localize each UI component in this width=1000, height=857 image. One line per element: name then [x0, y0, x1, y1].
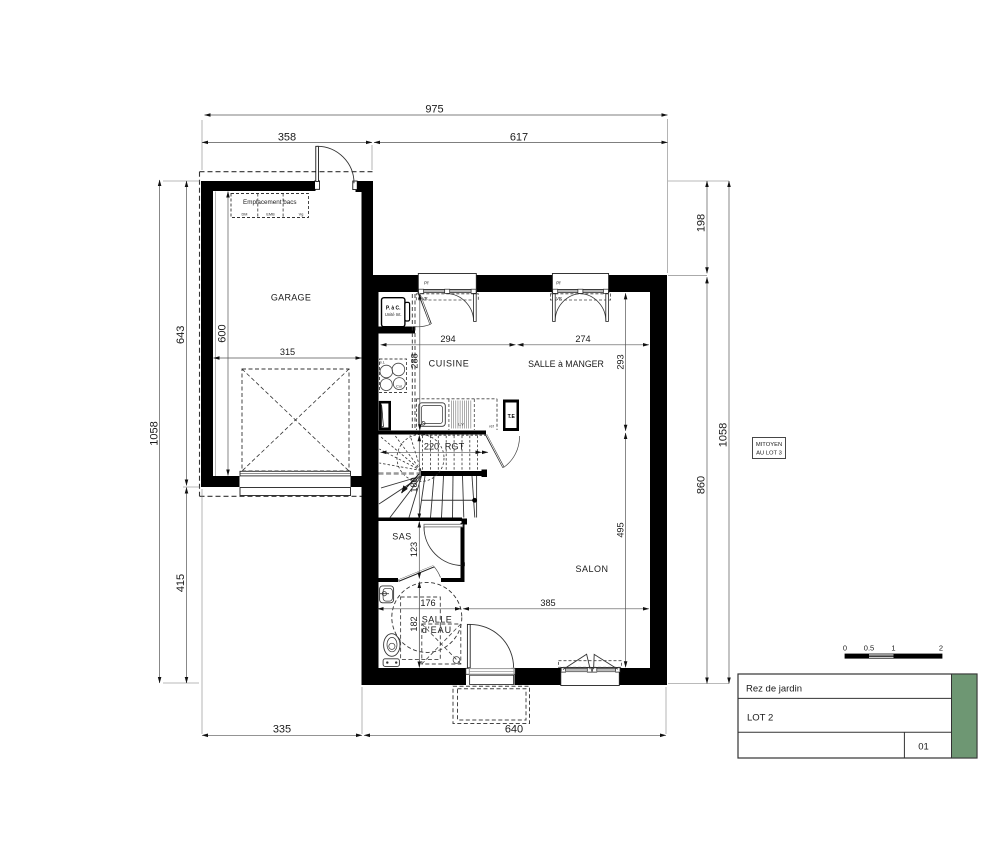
svg-text:293: 293 [615, 354, 625, 369]
svg-text:T.E: T.E [508, 414, 516, 420]
svg-text:2: 2 [939, 644, 943, 653]
svg-text:L.V: L.V [458, 423, 464, 427]
svg-text:P. à C.: P. à C. [386, 306, 401, 312]
svg-text:Pf: Pf [556, 281, 561, 286]
svg-text:643: 643 [175, 326, 187, 344]
svg-text:288: 288 [410, 353, 420, 368]
svg-text:176: 176 [420, 598, 435, 608]
svg-text:495: 495 [615, 522, 625, 537]
svg-text:294: 294 [440, 334, 455, 344]
svg-text:AU LOT 3: AU LOT 3 [756, 451, 782, 457]
svg-text:315: 315 [280, 347, 295, 357]
svg-text:S.L: S.L [379, 361, 385, 365]
svg-text:Emplacement bacs: Emplacement bacs [243, 199, 297, 206]
svg-text:198: 198 [696, 214, 708, 232]
svg-text:0: 0 [843, 644, 847, 653]
svg-text:975: 975 [425, 103, 443, 115]
svg-text:1: 1 [891, 644, 895, 653]
svg-text:SALLE: SALLE [422, 615, 453, 625]
svg-text:DM: DM [242, 212, 248, 216]
svg-text:220: 220 [424, 442, 439, 452]
svg-text:Unité Int.: Unité Int. [385, 312, 402, 317]
svg-text:640: 640 [505, 724, 523, 736]
svg-text:VR: VR [556, 296, 562, 301]
svg-text:123: 123 [409, 542, 419, 557]
svg-text:EMB: EMB [266, 212, 275, 216]
svg-text:335: 335 [273, 724, 291, 736]
svg-text:Rez de jardin: Rez de jardin [746, 684, 802, 695]
svg-text:617: 617 [510, 132, 528, 144]
svg-text:Vg: Vg [299, 212, 304, 216]
svg-text:RGT: RGT [445, 442, 465, 452]
svg-text:CUISINE: CUISINE [429, 359, 470, 369]
svg-text:358: 358 [278, 132, 296, 144]
svg-text:1058: 1058 [718, 423, 730, 447]
svg-text:LOT 2: LOT 2 [747, 713, 773, 724]
svg-text:01: 01 [918, 742, 929, 753]
svg-text:GARAGE: GARAGE [271, 292, 311, 302]
svg-text:385: 385 [540, 598, 555, 608]
svg-text:Cui: Cui [396, 385, 402, 389]
svg-text:SAS: SAS [392, 531, 412, 541]
svg-text:180: 180 [409, 477, 419, 492]
svg-text:SALLE à MANGER: SALLE à MANGER [528, 359, 604, 369]
svg-text:Pf: Pf [424, 281, 429, 286]
svg-text:SALON: SALON [575, 564, 608, 574]
svg-text:860: 860 [696, 476, 708, 494]
svg-text:600: 600 [217, 324, 229, 342]
svg-text:415: 415 [175, 574, 187, 592]
svg-text:MITOYEN: MITOYEN [756, 442, 782, 448]
svg-text:1058: 1058 [148, 421, 160, 445]
svg-text:0.5: 0.5 [864, 644, 874, 653]
svg-text:182: 182 [409, 616, 419, 631]
svg-text:274: 274 [575, 334, 590, 344]
svg-text:d'EAU: d'EAU [422, 625, 452, 635]
